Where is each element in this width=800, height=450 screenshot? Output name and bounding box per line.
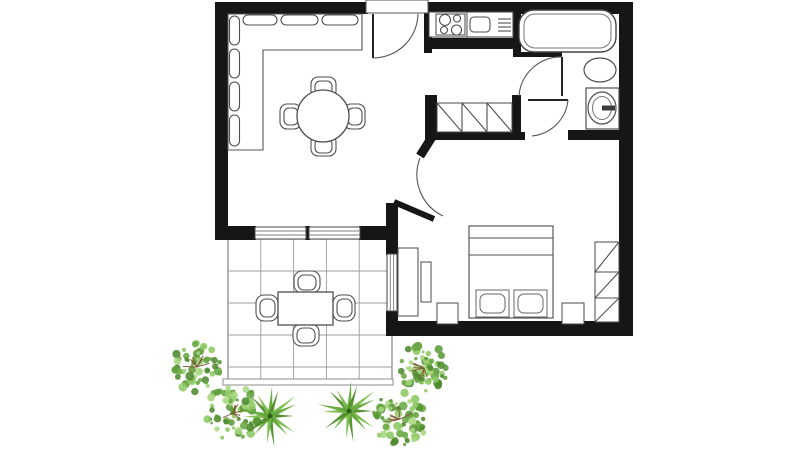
patio-edge bbox=[223, 379, 393, 385]
kitchen-niche bbox=[429, 12, 513, 37]
foliage-dot bbox=[388, 406, 392, 410]
foliage-dot bbox=[435, 345, 443, 353]
foliage-dot bbox=[208, 347, 215, 354]
foliage-dot bbox=[395, 402, 398, 405]
foliage-dot bbox=[429, 358, 434, 363]
foliage-dot bbox=[440, 374, 444, 378]
foliage-dot bbox=[175, 374, 181, 380]
tv bbox=[421, 262, 431, 302]
wall-west bbox=[215, 2, 228, 240]
foliage-dot bbox=[204, 380, 208, 384]
foliage-dot bbox=[236, 398, 239, 401]
foliage-dot bbox=[183, 369, 187, 373]
foliage-dot bbox=[205, 356, 210, 361]
foliage-dot bbox=[409, 360, 413, 364]
foliage-dot bbox=[416, 420, 419, 423]
foliage-dot bbox=[186, 359, 189, 362]
foliage-dot bbox=[405, 438, 410, 443]
bedroom-window bbox=[387, 254, 397, 311]
dining-table bbox=[297, 90, 349, 142]
wall-south-living-west bbox=[215, 226, 256, 240]
foliage-dot bbox=[400, 359, 404, 363]
foliage-dot bbox=[421, 417, 425, 421]
foliage-dot bbox=[395, 410, 403, 418]
foliage-dot bbox=[405, 346, 412, 353]
foliage-dot bbox=[425, 378, 432, 385]
wall-closet-post-west bbox=[425, 95, 437, 133]
foliage-dot bbox=[424, 357, 428, 361]
hallway bbox=[437, 103, 512, 132]
wall-bedroom-south bbox=[386, 321, 633, 336]
foliage-dot bbox=[192, 341, 199, 348]
foliage-dot bbox=[172, 350, 180, 358]
foliage-dot bbox=[411, 437, 416, 442]
foliage-dot bbox=[389, 399, 393, 403]
foliage-dot bbox=[214, 415, 221, 422]
foliage-dot bbox=[401, 373, 407, 379]
foliage-dot bbox=[411, 344, 418, 351]
foliage-dot bbox=[393, 422, 401, 430]
living-window-2 bbox=[309, 227, 360, 239]
foliage-dot bbox=[198, 378, 202, 382]
foliage-dot bbox=[211, 357, 217, 363]
foliage-dot bbox=[206, 369, 210, 373]
foliage-dot bbox=[180, 384, 183, 387]
foliage-dot bbox=[410, 428, 415, 433]
bush bbox=[398, 342, 449, 393]
wash-basin bbox=[584, 58, 616, 82]
foliage-dot bbox=[220, 436, 224, 440]
foliage-dot bbox=[225, 427, 230, 432]
floor-plan-canvas bbox=[0, 0, 800, 450]
foliage-dot bbox=[422, 381, 425, 384]
foliage-dot bbox=[379, 407, 385, 413]
foliage-dot bbox=[383, 423, 389, 429]
foliage-dot bbox=[432, 376, 438, 382]
foliage-dot bbox=[414, 357, 418, 361]
foliage-dot bbox=[379, 398, 383, 402]
foliage-dot bbox=[185, 372, 194, 381]
foliage-dot bbox=[207, 394, 215, 402]
foliage-dot bbox=[412, 402, 418, 408]
foliage-dot bbox=[437, 361, 445, 369]
foliage-dot bbox=[240, 422, 248, 430]
foliage-dot bbox=[249, 402, 256, 409]
foliage-dot bbox=[403, 443, 406, 446]
foliage-dot bbox=[400, 389, 408, 397]
foliage-dot bbox=[223, 419, 228, 424]
foliage-dot bbox=[200, 343, 207, 350]
wall-bedroom-west-upper bbox=[386, 203, 398, 255]
foliage-dot bbox=[210, 422, 213, 425]
wall-kitchen-front bbox=[424, 38, 521, 49]
twig bbox=[183, 366, 197, 367]
washer-handle bbox=[602, 106, 615, 111]
foliage-dot bbox=[406, 379, 412, 385]
wall-under-washer bbox=[568, 130, 633, 140]
foliage-dot bbox=[203, 415, 211, 423]
foliage-dot bbox=[209, 407, 215, 413]
wall-east bbox=[619, 2, 633, 336]
palm-center bbox=[268, 414, 273, 419]
foliage-dot bbox=[231, 391, 238, 398]
foliage-dot bbox=[407, 399, 411, 403]
foliage-dot bbox=[426, 351, 431, 356]
foliage-dot bbox=[396, 430, 404, 438]
foliage-dot bbox=[196, 351, 200, 355]
bathtub bbox=[519, 10, 616, 52]
foliage-dot bbox=[392, 439, 399, 446]
foliage-dot bbox=[182, 348, 186, 352]
foliage-dot bbox=[401, 422, 406, 427]
foliage-dot bbox=[421, 377, 425, 381]
foliage-dot bbox=[374, 412, 380, 418]
foliage-dot bbox=[426, 373, 429, 376]
foliage-dot bbox=[212, 363, 218, 369]
foliage-dot bbox=[214, 389, 221, 396]
foliage-dot bbox=[408, 417, 416, 425]
foliage-dot bbox=[222, 397, 229, 404]
foliage-dot bbox=[241, 434, 245, 438]
wall-under-tub bbox=[513, 52, 562, 57]
foliage-dot bbox=[413, 412, 419, 418]
background bbox=[0, 0, 800, 450]
entrance-threshold bbox=[366, 0, 428, 13]
foliage-dot bbox=[420, 355, 425, 360]
floor-plan bbox=[0, 0, 800, 450]
palm-center bbox=[347, 409, 352, 414]
foliage-dot bbox=[415, 378, 420, 383]
bed bbox=[469, 226, 553, 318]
wall-under-closet bbox=[425, 132, 525, 140]
foliage-dot bbox=[191, 388, 198, 395]
foliage-dot bbox=[408, 367, 413, 372]
foliage-dot bbox=[214, 426, 219, 431]
foliage-dot bbox=[198, 369, 203, 374]
foliage-dot bbox=[420, 427, 423, 430]
foliage-dot bbox=[228, 419, 235, 426]
foliage-dot bbox=[422, 350, 425, 353]
patio-table bbox=[278, 292, 333, 325]
wall-top-west bbox=[215, 2, 368, 14]
foliage-dot bbox=[174, 357, 182, 365]
foliage-dot bbox=[184, 387, 187, 390]
foliage-dot bbox=[242, 397, 250, 405]
foliage-dot bbox=[175, 368, 182, 375]
foliage-dot bbox=[386, 431, 394, 439]
patio bbox=[223, 239, 393, 385]
living-window-1 bbox=[255, 227, 306, 239]
nightstand-left bbox=[437, 303, 458, 324]
foliage-dot bbox=[424, 389, 428, 393]
tv-cabinet bbox=[398, 248, 418, 316]
foliage-dot bbox=[428, 365, 434, 371]
foliage-dot bbox=[217, 360, 222, 365]
foliage-dot bbox=[232, 426, 235, 429]
foliage-dot bbox=[420, 430, 426, 436]
foliage-dot bbox=[377, 433, 382, 438]
nightstand-right bbox=[562, 303, 584, 324]
